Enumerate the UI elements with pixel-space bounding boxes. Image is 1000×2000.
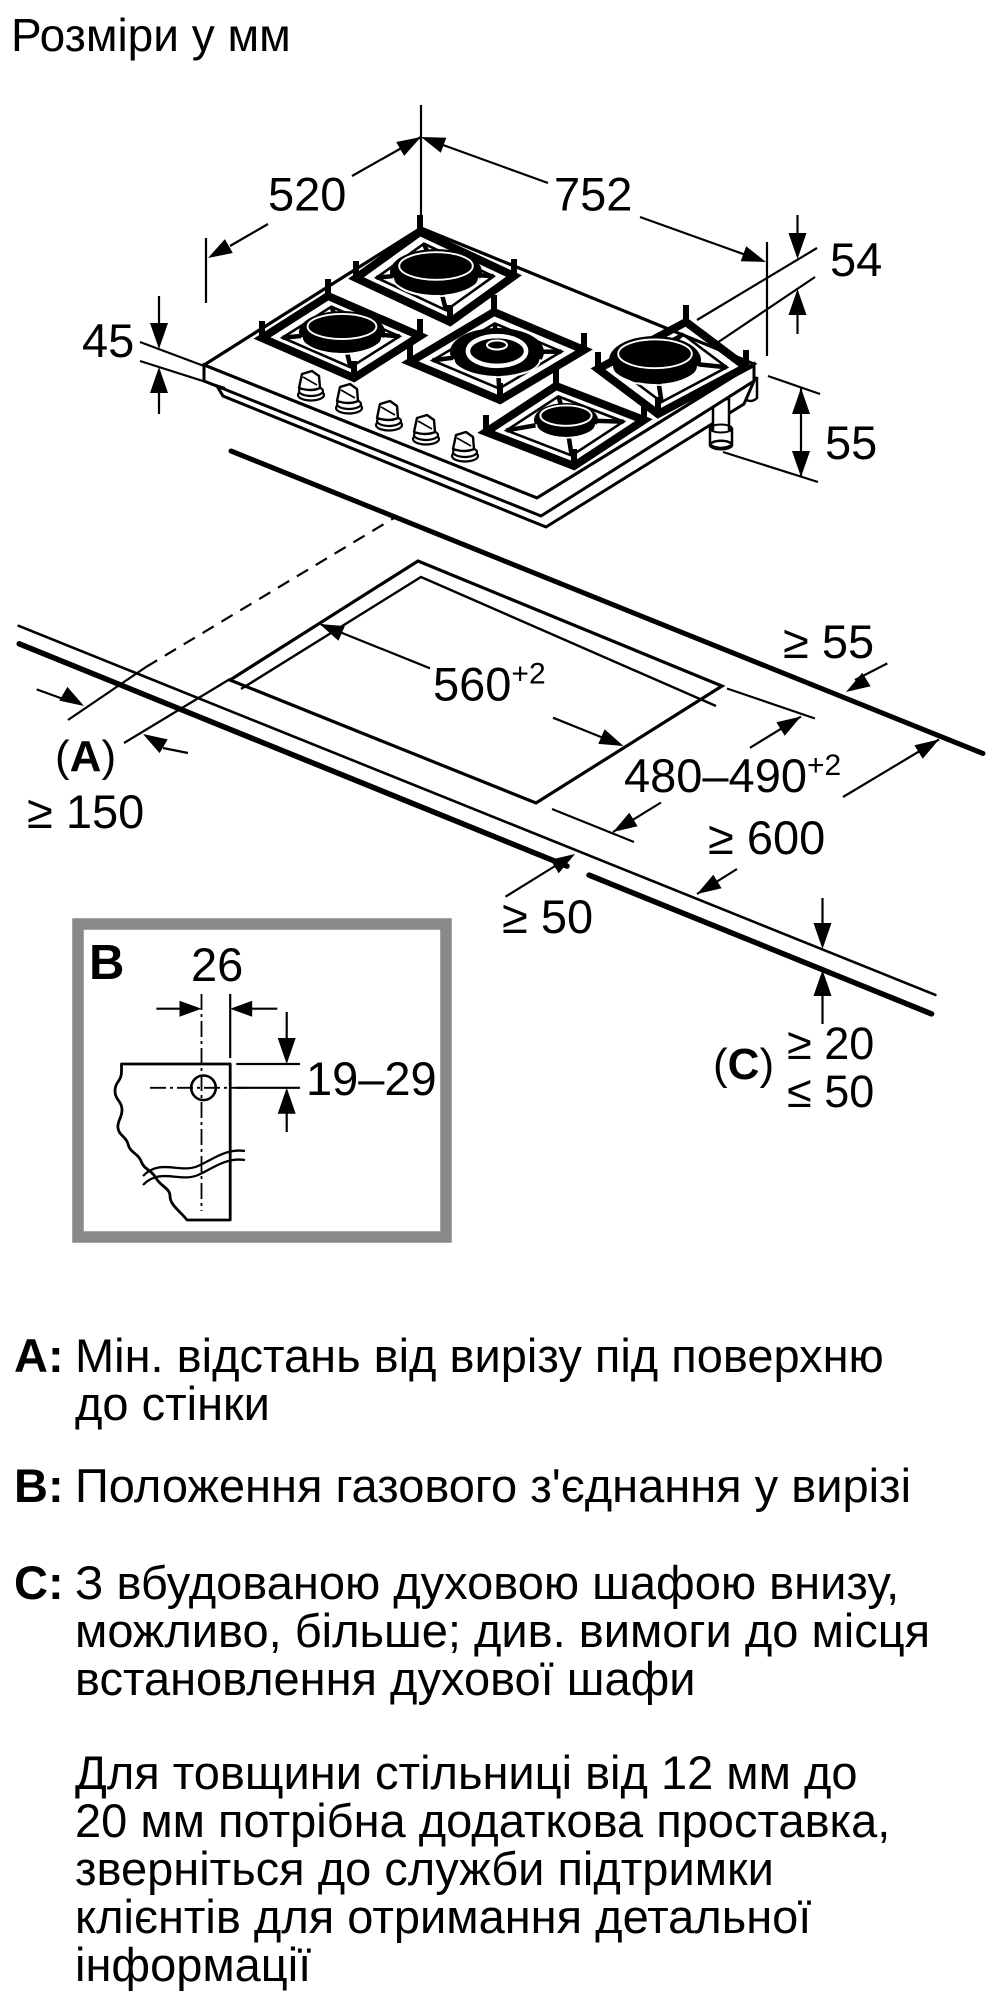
svg-text:≥ 20: ≥ 20 xyxy=(787,1018,874,1069)
svg-text:(C): (C) xyxy=(713,1040,774,1089)
svg-text:Мін. відстань від вирізу під п: Мін. відстань від вирізу під поверхню xyxy=(75,1329,884,1382)
svg-text:до стінки: до стінки xyxy=(75,1377,270,1430)
svg-text:(A): (A) xyxy=(55,732,116,781)
svg-text:54: 54 xyxy=(830,233,882,286)
svg-text:можливо, більше; див. вимоги д: можливо, більше; див. вимоги до місця xyxy=(75,1604,930,1657)
svg-text:≤ 50: ≤ 50 xyxy=(787,1066,874,1117)
svg-text:В:: В: xyxy=(14,1459,64,1512)
svg-text:≥ 55: ≥ 55 xyxy=(783,615,874,668)
svg-text:Розміри у мм: Розміри у мм xyxy=(11,9,291,61)
svg-text:45: 45 xyxy=(82,314,134,367)
svg-text:≥ 50: ≥ 50 xyxy=(502,890,593,943)
svg-text:зверніться до служби підтримки: зверніться до служби підтримки xyxy=(75,1842,774,1895)
svg-text:Для товщини стільниці від 12 м: Для товщини стільниці від 12 мм до xyxy=(75,1746,858,1799)
svg-text:С:: С: xyxy=(14,1556,64,1609)
svg-text:752: 752 xyxy=(554,168,632,221)
svg-text:55: 55 xyxy=(825,416,877,469)
svg-text:26: 26 xyxy=(191,938,243,991)
svg-text:≥ 150: ≥ 150 xyxy=(27,785,144,838)
svg-text:Положення газового з'єднання у: Положення газового з'єднання у вирізі xyxy=(75,1459,911,1512)
svg-text:А:: А: xyxy=(14,1329,64,1382)
svg-text:≥ 600: ≥ 600 xyxy=(708,811,825,864)
svg-text:520: 520 xyxy=(268,168,346,221)
svg-text:інформації: інформації xyxy=(75,1938,311,1991)
svg-text:встановлення духової шафи: встановлення духової шафи xyxy=(75,1652,696,1705)
svg-text:19–29: 19–29 xyxy=(306,1052,437,1105)
svg-text:B: B xyxy=(89,936,124,990)
svg-text:клієнтів для отримання детальн: клієнтів для отримання детальної xyxy=(75,1890,811,1943)
svg-text:З вбудованою духовою шафою вни: З вбудованою духовою шафою внизу, xyxy=(75,1556,899,1609)
svg-text:20 мм потрібна додаткова прост: 20 мм потрібна додаткова проставка, xyxy=(75,1794,890,1847)
